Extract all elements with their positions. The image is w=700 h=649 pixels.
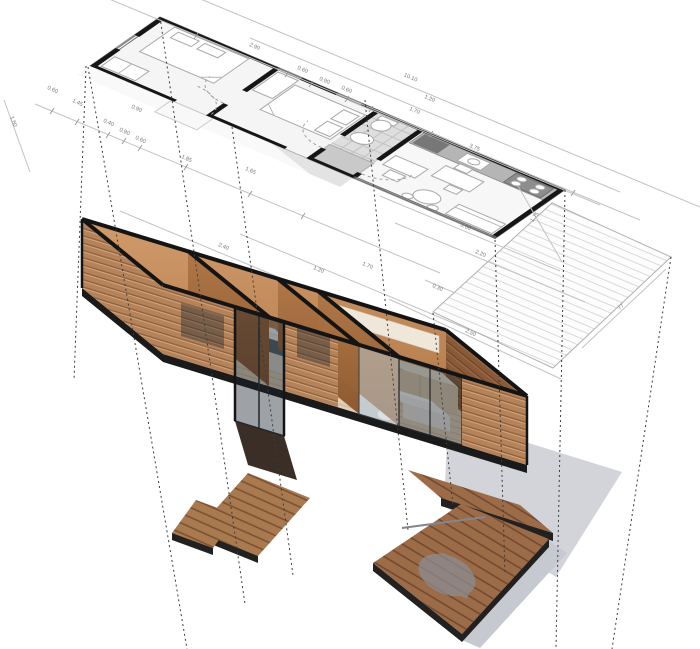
dimension-label: 1.60 — [8, 115, 18, 127]
dimension-label: 0.60 — [296, 65, 308, 75]
dimension-label: 2.40 — [217, 242, 229, 252]
dimension-label: 0.90 — [130, 104, 142, 114]
dimension-label: 2.20 — [474, 249, 486, 259]
dimension-label: 10.10 — [403, 73, 418, 84]
dimension-label: 1.70 — [408, 106, 420, 116]
dimension-label: 1.85 — [180, 154, 192, 164]
dimension-label: 1.70 — [361, 261, 373, 271]
axonometric-diagram: 2.90 0.60 0.90 0.60 10.10 1.20 1.70 3.75… — [0, 0, 700, 649]
entry-steps — [172, 421, 310, 563]
dimension-label: 1.65 — [244, 166, 256, 176]
dimension-label: 0.40 — [102, 118, 114, 128]
floor-plan — [74, 17, 565, 250]
dimension-label: 1.20 — [312, 265, 324, 275]
dimension-label: 0.60 — [46, 85, 58, 95]
dimension-label: 0.60 — [134, 135, 146, 145]
dimension-label: 0.90 — [318, 76, 330, 86]
dimension-label: 1.45 — [71, 98, 83, 108]
dimension-label: 0.60 — [340, 85, 352, 95]
dimension-label: 0.30 — [431, 283, 443, 293]
dimension-label: 0.90 — [118, 127, 130, 137]
diagram-canvas: 2.90 0.60 0.90 0.60 10.10 1.20 1.70 3.75… — [0, 0, 700, 649]
dimension-label: 2.90 — [248, 42, 260, 52]
